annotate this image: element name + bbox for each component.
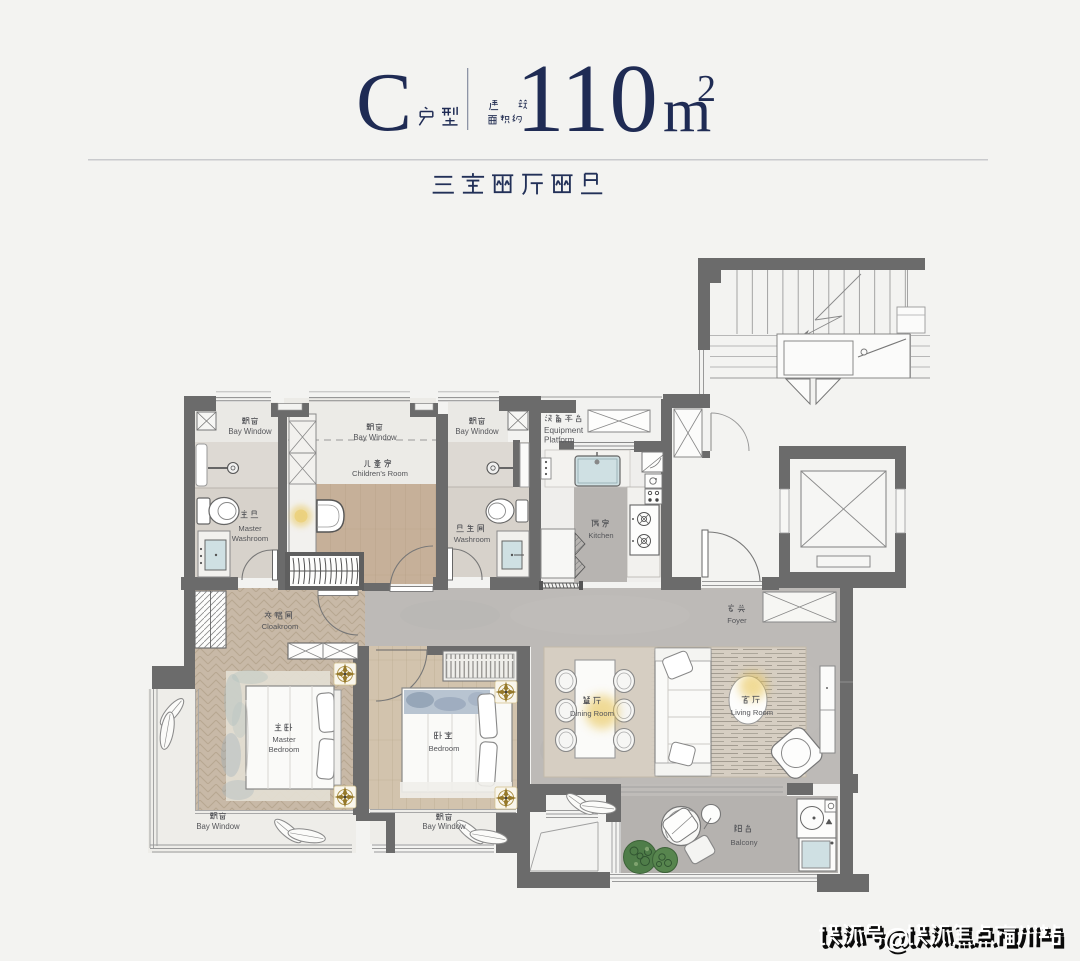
svg-text:Children's Room: Children's Room [352, 469, 408, 478]
svg-text:2: 2 [697, 68, 716, 110]
svg-text:Kitchen: Kitchen [588, 531, 613, 540]
svg-text:Bedroom: Bedroom [429, 744, 460, 753]
svg-text:Cloakroom: Cloakroom [262, 622, 299, 631]
svg-text:Master: Master [238, 524, 262, 533]
svg-text:Platform: Platform [544, 436, 575, 445]
svg-text:Bay Window: Bay Window [422, 822, 466, 831]
svg-text:Living Room: Living Room [731, 708, 773, 717]
svg-text:Bay Window: Bay Window [196, 822, 240, 831]
svg-text:110: 110 [516, 45, 658, 152]
svg-text:Washroom: Washroom [232, 534, 268, 543]
svg-text:@: @ [883, 923, 909, 953]
svg-text:Dining Room: Dining Room [570, 709, 614, 718]
svg-text:Master: Master [272, 735, 296, 744]
svg-text:Foyer: Foyer [727, 616, 747, 625]
svg-text:Bay Window: Bay Window [353, 433, 397, 442]
svg-text:Equipment: Equipment [544, 426, 584, 435]
svg-text:Bay Window: Bay Window [228, 427, 272, 436]
svg-text:Bedroom: Bedroom [269, 745, 300, 754]
svg-text:Bay Window: Bay Window [455, 427, 499, 436]
svg-text:Balcony: Balcony [730, 838, 757, 847]
svg-text:Washroom: Washroom [454, 535, 490, 544]
svg-text:C: C [356, 56, 412, 149]
